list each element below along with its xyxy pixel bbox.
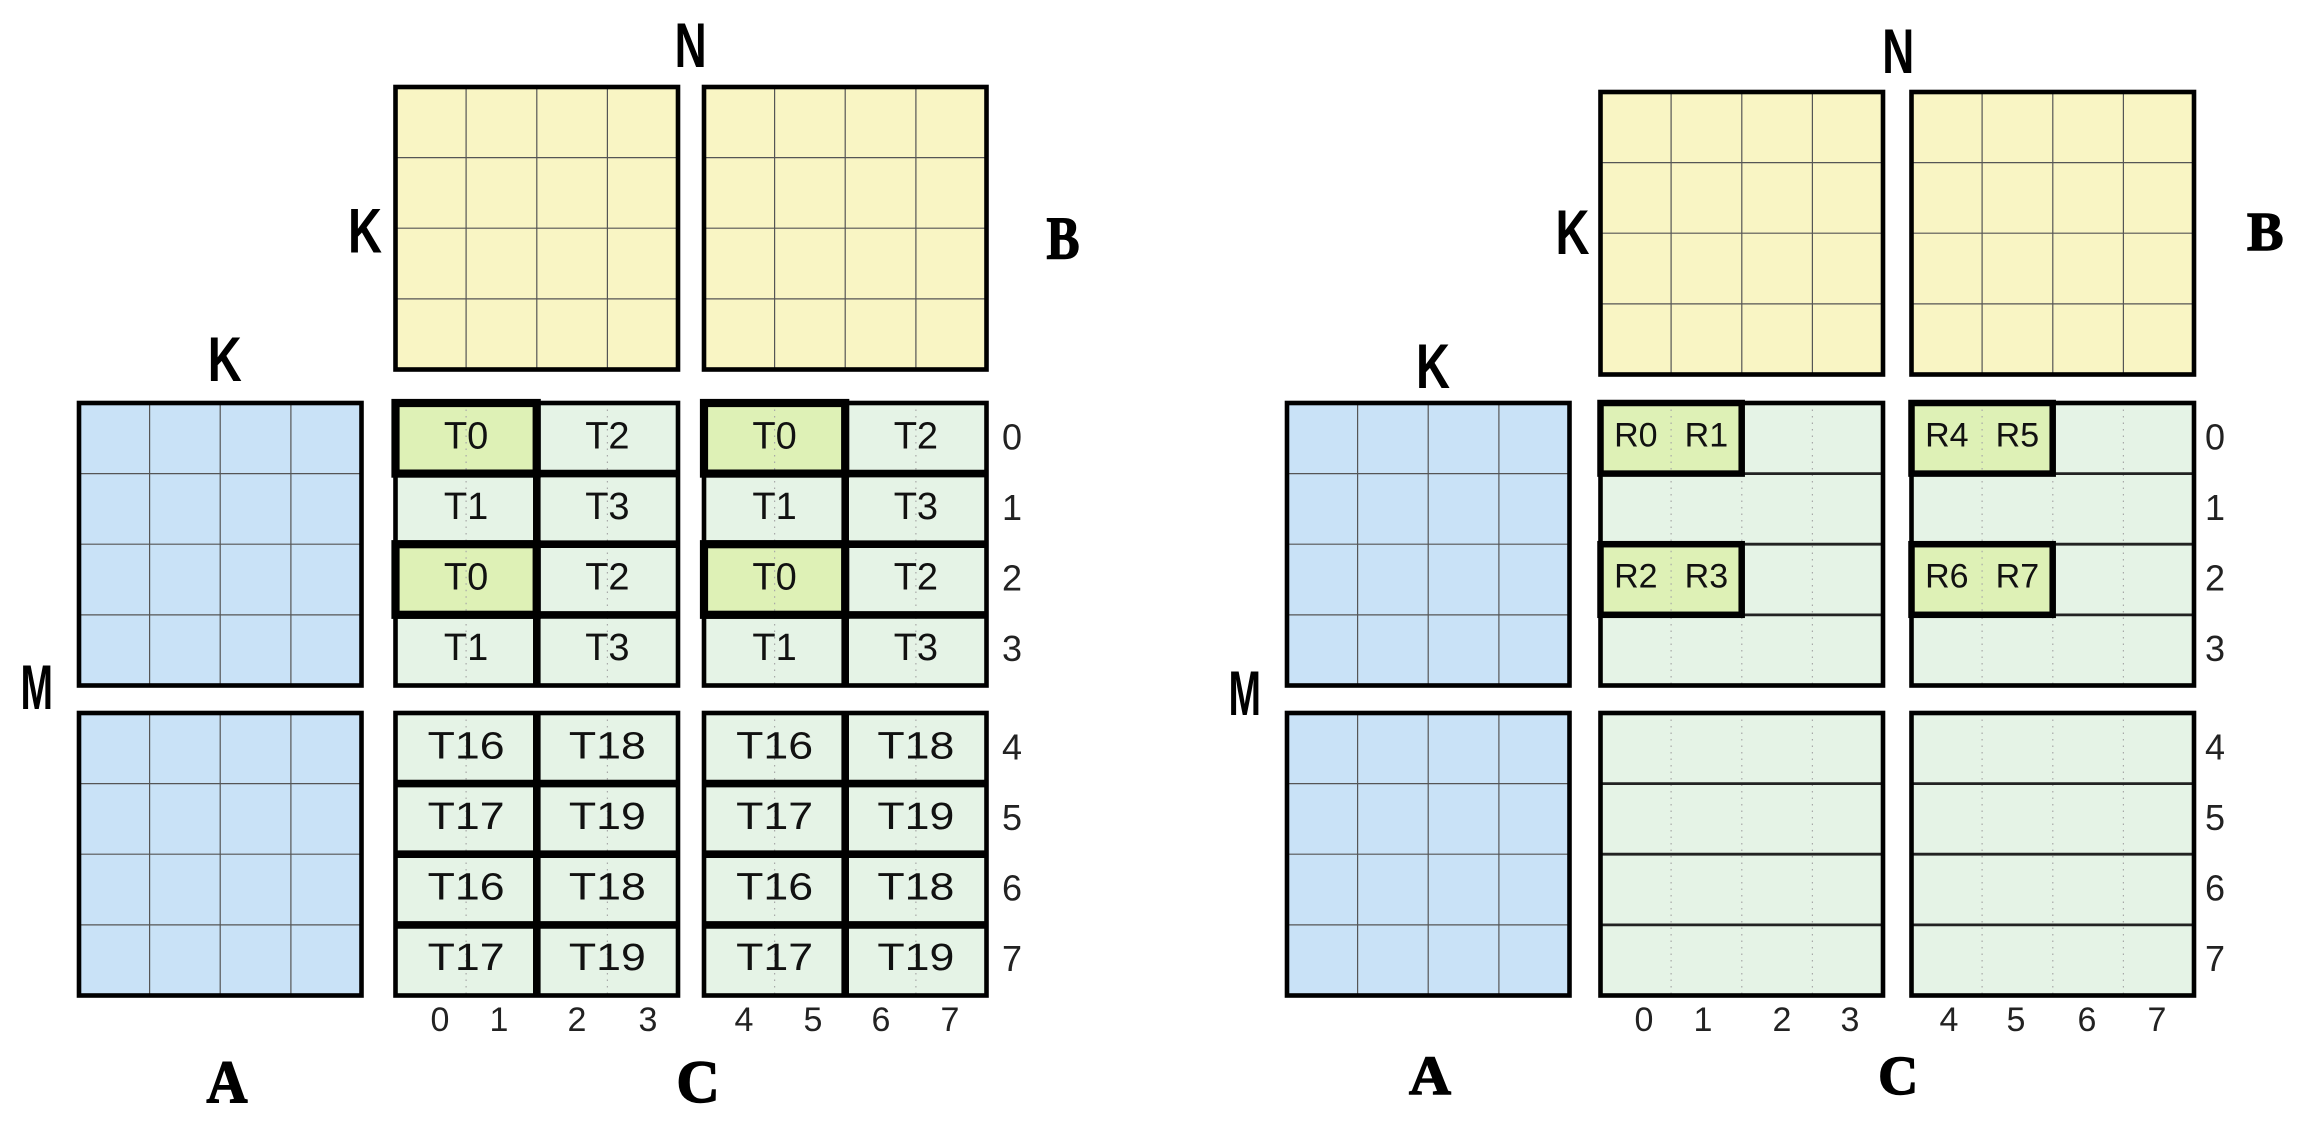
svg-text:0: 0 <box>1635 1001 1654 1039</box>
svg-text:0: 0 <box>431 1001 450 1039</box>
svg-text:0: 0 <box>1002 416 1022 457</box>
svg-text:R0: R0 <box>1614 416 1657 454</box>
svg-text:2: 2 <box>1002 558 1022 599</box>
svg-text:3: 3 <box>1002 628 1022 669</box>
svg-text:R4: R4 <box>1925 416 1968 454</box>
svg-text:R1: R1 <box>1685 416 1728 454</box>
svg-text:T16: T16 <box>428 725 505 767</box>
svg-text:T17: T17 <box>428 796 505 838</box>
svg-text:T16: T16 <box>736 867 813 909</box>
svg-text:C: C <box>676 1049 719 1115</box>
svg-text:6: 6 <box>2078 1001 2097 1039</box>
svg-text:T17: T17 <box>736 937 813 979</box>
svg-text:T16: T16 <box>736 725 813 767</box>
svg-text:7: 7 <box>2205 938 2225 979</box>
svg-text:T2: T2 <box>585 557 629 599</box>
svg-text:R7: R7 <box>1996 558 2039 596</box>
svg-text:T1: T1 <box>752 627 796 669</box>
svg-text:1: 1 <box>490 1001 509 1039</box>
svg-text:1: 1 <box>1002 487 1022 528</box>
svg-text:6: 6 <box>2205 868 2225 909</box>
svg-text:5: 5 <box>2205 797 2225 838</box>
svg-text:4: 4 <box>2205 726 2225 767</box>
svg-text:T2: T2 <box>894 415 938 457</box>
svg-text:7: 7 <box>2148 1001 2167 1039</box>
svg-text:0: 0 <box>2205 416 2225 457</box>
svg-text:B: B <box>1047 206 1080 272</box>
svg-text:T17: T17 <box>428 937 505 979</box>
svg-text:C: C <box>1878 1046 1918 1107</box>
svg-text:T19: T19 <box>569 937 646 979</box>
svg-text:T0: T0 <box>752 415 796 457</box>
svg-text:T2: T2 <box>585 415 629 457</box>
svg-text:M: M <box>1228 659 1261 729</box>
svg-text:A: A <box>207 1049 248 1115</box>
svg-text:B: B <box>2247 202 2284 263</box>
svg-text:K: K <box>1416 332 1450 402</box>
svg-text:2: 2 <box>1773 1001 1792 1039</box>
svg-text:3: 3 <box>1841 1001 1860 1039</box>
svg-text:T3: T3 <box>894 486 938 528</box>
svg-text:A: A <box>1409 1046 1451 1107</box>
svg-text:T0: T0 <box>444 415 488 457</box>
svg-text:N: N <box>1882 17 1914 87</box>
svg-text:7: 7 <box>941 1001 960 1039</box>
svg-text:T2: T2 <box>894 557 938 599</box>
svg-text:4: 4 <box>1002 726 1022 767</box>
svg-text:4: 4 <box>735 1001 754 1039</box>
svg-text:T18: T18 <box>877 867 954 909</box>
svg-text:1: 1 <box>1694 1001 1713 1039</box>
svg-text:6: 6 <box>1002 868 1022 909</box>
svg-text:5: 5 <box>804 1001 823 1039</box>
svg-text:T1: T1 <box>752 486 796 528</box>
svg-text:M: M <box>20 653 53 723</box>
svg-text:R6: R6 <box>1925 558 1968 596</box>
svg-text:T3: T3 <box>585 486 629 528</box>
svg-text:5: 5 <box>2007 1001 2026 1039</box>
svg-text:3: 3 <box>639 1001 658 1039</box>
svg-text:T0: T0 <box>752 557 796 599</box>
svg-text:R5: R5 <box>1996 416 2039 454</box>
svg-text:N: N <box>675 11 707 81</box>
svg-text:K: K <box>1556 198 1590 268</box>
svg-text:T19: T19 <box>877 937 954 979</box>
svg-text:T18: T18 <box>569 867 646 909</box>
svg-text:7: 7 <box>1002 938 1022 979</box>
svg-text:R3: R3 <box>1685 558 1728 596</box>
svg-text:T17: T17 <box>736 796 813 838</box>
svg-text:T18: T18 <box>877 725 954 767</box>
svg-text:K: K <box>208 325 242 395</box>
svg-text:2: 2 <box>568 1001 587 1039</box>
svg-text:T1: T1 <box>444 627 488 669</box>
svg-text:K: K <box>348 197 382 267</box>
svg-text:4: 4 <box>1940 1001 1959 1039</box>
svg-text:T3: T3 <box>894 627 938 669</box>
svg-text:T19: T19 <box>569 796 646 838</box>
svg-text:3: 3 <box>2205 628 2225 669</box>
svg-text:5: 5 <box>1002 797 1022 838</box>
svg-text:6: 6 <box>872 1001 891 1039</box>
svg-text:1: 1 <box>2205 487 2225 528</box>
svg-text:T18: T18 <box>569 725 646 767</box>
svg-text:2: 2 <box>2205 558 2225 599</box>
svg-text:T3: T3 <box>585 627 629 669</box>
svg-text:T0: T0 <box>444 557 488 599</box>
svg-text:T19: T19 <box>877 796 954 838</box>
svg-text:T1: T1 <box>444 486 488 528</box>
svg-text:T16: T16 <box>428 867 505 909</box>
svg-text:R2: R2 <box>1614 558 1657 596</box>
